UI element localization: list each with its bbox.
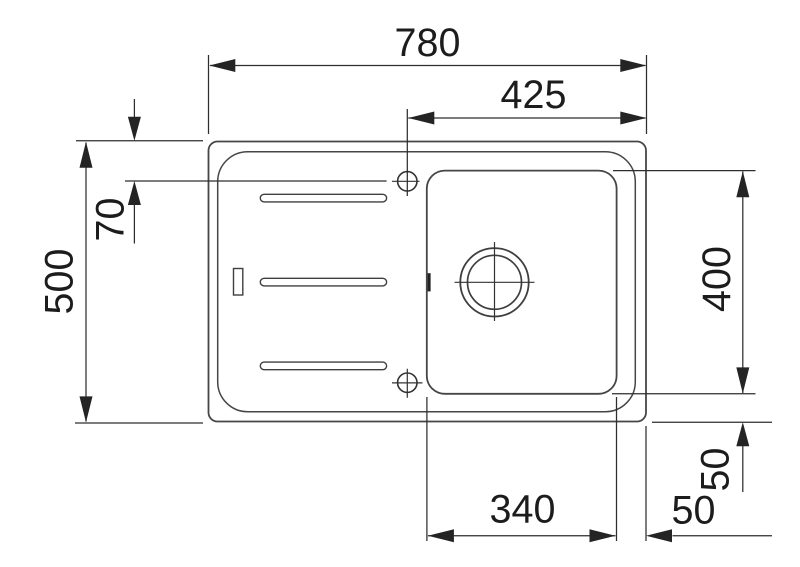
svg-text:70: 70	[89, 198, 133, 242]
svg-text:425: 425	[501, 73, 567, 117]
svg-text:780: 780	[395, 21, 461, 65]
svg-text:500: 500	[38, 249, 82, 315]
svg-text:50: 50	[672, 489, 716, 533]
svg-text:400: 400	[695, 246, 739, 312]
svg-text:340: 340	[490, 488, 556, 532]
svg-text:50: 50	[694, 448, 738, 492]
